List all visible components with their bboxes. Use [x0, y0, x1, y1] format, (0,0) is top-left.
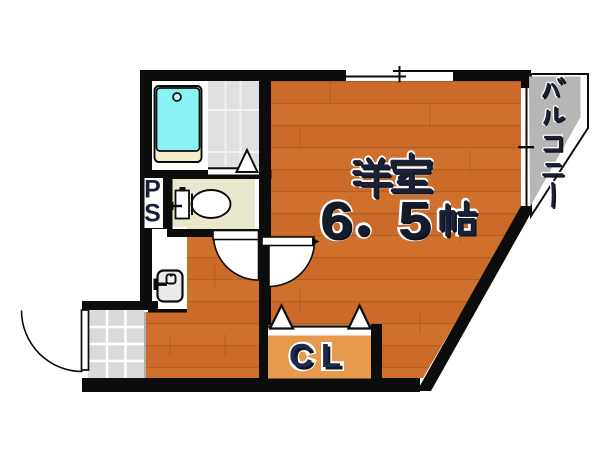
svg-text:6: 6: [320, 190, 353, 249]
svg-text:S: S: [144, 200, 161, 228]
svg-text:5: 5: [398, 190, 431, 249]
svg-text:CL: CL: [289, 337, 349, 374]
